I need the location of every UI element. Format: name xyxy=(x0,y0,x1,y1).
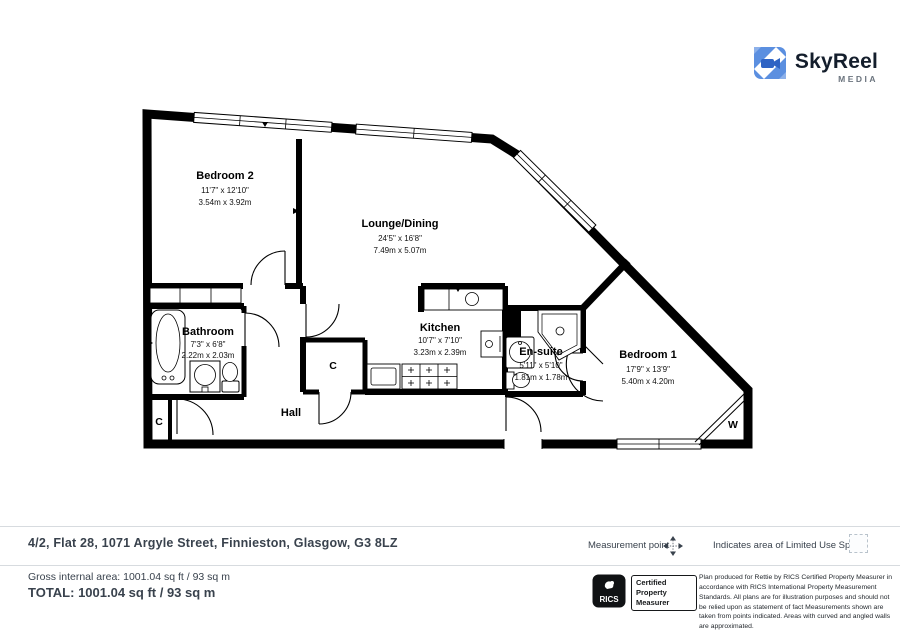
svg-text:3.23m x 2.39m: 3.23m x 2.39m xyxy=(414,348,467,357)
room-label-bedroom-2: Bedroom 2 11'7" x 12'10" 3.54m x 3.92m xyxy=(196,170,253,207)
certified-property-measurer: Certified Property Measurer xyxy=(631,575,697,611)
svg-text:7'3" x 6'8": 7'3" x 6'8" xyxy=(191,340,226,349)
kitchen-appliance xyxy=(481,331,503,357)
svg-text:Bedroom 1: Bedroom 1 xyxy=(619,349,676,361)
measurement-point-icon xyxy=(663,536,683,556)
closet-left-label: C xyxy=(155,416,163,428)
room-label-ensuite: En-suite 5'11" x 5'10" 1.81m x 1.78m xyxy=(515,346,568,382)
limited-use-swatch xyxy=(849,534,868,553)
cert-line: Property xyxy=(636,588,692,598)
gross-internal-area: Gross internal area: 1001.04 sq ft / 93 … xyxy=(28,571,230,583)
svg-text:11'7" x 12'10": 11'7" x 12'10" xyxy=(201,186,249,195)
svg-text:Bathroom: Bathroom xyxy=(182,326,234,338)
svg-text:24'5" x 16'8": 24'5" x 16'8" xyxy=(378,234,422,243)
window xyxy=(617,439,701,449)
washing-machine xyxy=(367,364,400,389)
svg-text:5.40m x 4.20m: 5.40m x 4.20m xyxy=(622,377,675,386)
floorplan-page: SkyReel MEDIA xyxy=(0,0,900,636)
bedroom2-wardrobe xyxy=(150,288,241,303)
cert-line: Measurer xyxy=(636,598,692,608)
rics-badge: RICS xyxy=(592,574,626,608)
total-area: TOTAL: 1001.04 sq ft / 93 sq m xyxy=(28,585,215,600)
svg-text:1.81m x 1.78m: 1.81m x 1.78m xyxy=(515,373,568,382)
wardrobe-label: W xyxy=(728,419,738,431)
svg-text:7.49m x 5.07m: 7.49m x 5.07m xyxy=(374,246,427,255)
cert-line: Certified xyxy=(636,578,692,588)
svg-text:Lounge/Dining: Lounge/Dining xyxy=(362,218,439,230)
svg-text:3.54m x 3.92m: 3.54m x 3.92m xyxy=(199,198,252,207)
divider-top xyxy=(0,526,900,527)
bathtub xyxy=(151,310,185,384)
hob xyxy=(402,364,457,389)
svg-text:17'9" x 13'9": 17'9" x 13'9" xyxy=(626,365,670,374)
room-label-bedroom-1: Bedroom 1 17'9" x 13'9" 5.40m x 4.20m xyxy=(619,349,676,386)
disclaimer-text: Plan produced for Rettie by RICS Certifi… xyxy=(699,573,897,632)
closet-mid-label: C xyxy=(329,360,337,372)
legend-measurement-point: Measurement point xyxy=(588,540,669,551)
svg-text:10'7" x 7'10": 10'7" x 7'10" xyxy=(418,336,462,345)
bathroom-toilet xyxy=(222,363,239,393)
rics-label: RICS xyxy=(599,595,619,604)
divider-bottom xyxy=(0,565,900,566)
hall-label: Hall xyxy=(281,407,301,419)
svg-text:Kitchen: Kitchen xyxy=(420,322,461,334)
bathroom-sink xyxy=(190,361,220,392)
legend-limited-use: Indicates area of Limited Use Space xyxy=(713,540,866,551)
entrance-gap xyxy=(504,438,542,450)
svg-text:5'11" x 5'10": 5'11" x 5'10" xyxy=(519,361,562,370)
svg-text:Bedroom 2: Bedroom 2 xyxy=(196,170,253,182)
svg-text:2.22m x 2.03m: 2.22m x 2.03m xyxy=(182,351,235,360)
floorplan: Bedroom 2 11'7" x 12'10" 3.54m x 3.92m L… xyxy=(0,0,900,520)
room-label-kitchen: Kitchen 10'7" x 7'10" 3.23m x 2.39m xyxy=(414,322,467,357)
property-address: 4/2, Flat 28, 1071 Argyle Street, Finnie… xyxy=(28,536,398,550)
kitchen-counter xyxy=(424,289,503,310)
svg-text:En-suite: En-suite xyxy=(519,346,562,358)
